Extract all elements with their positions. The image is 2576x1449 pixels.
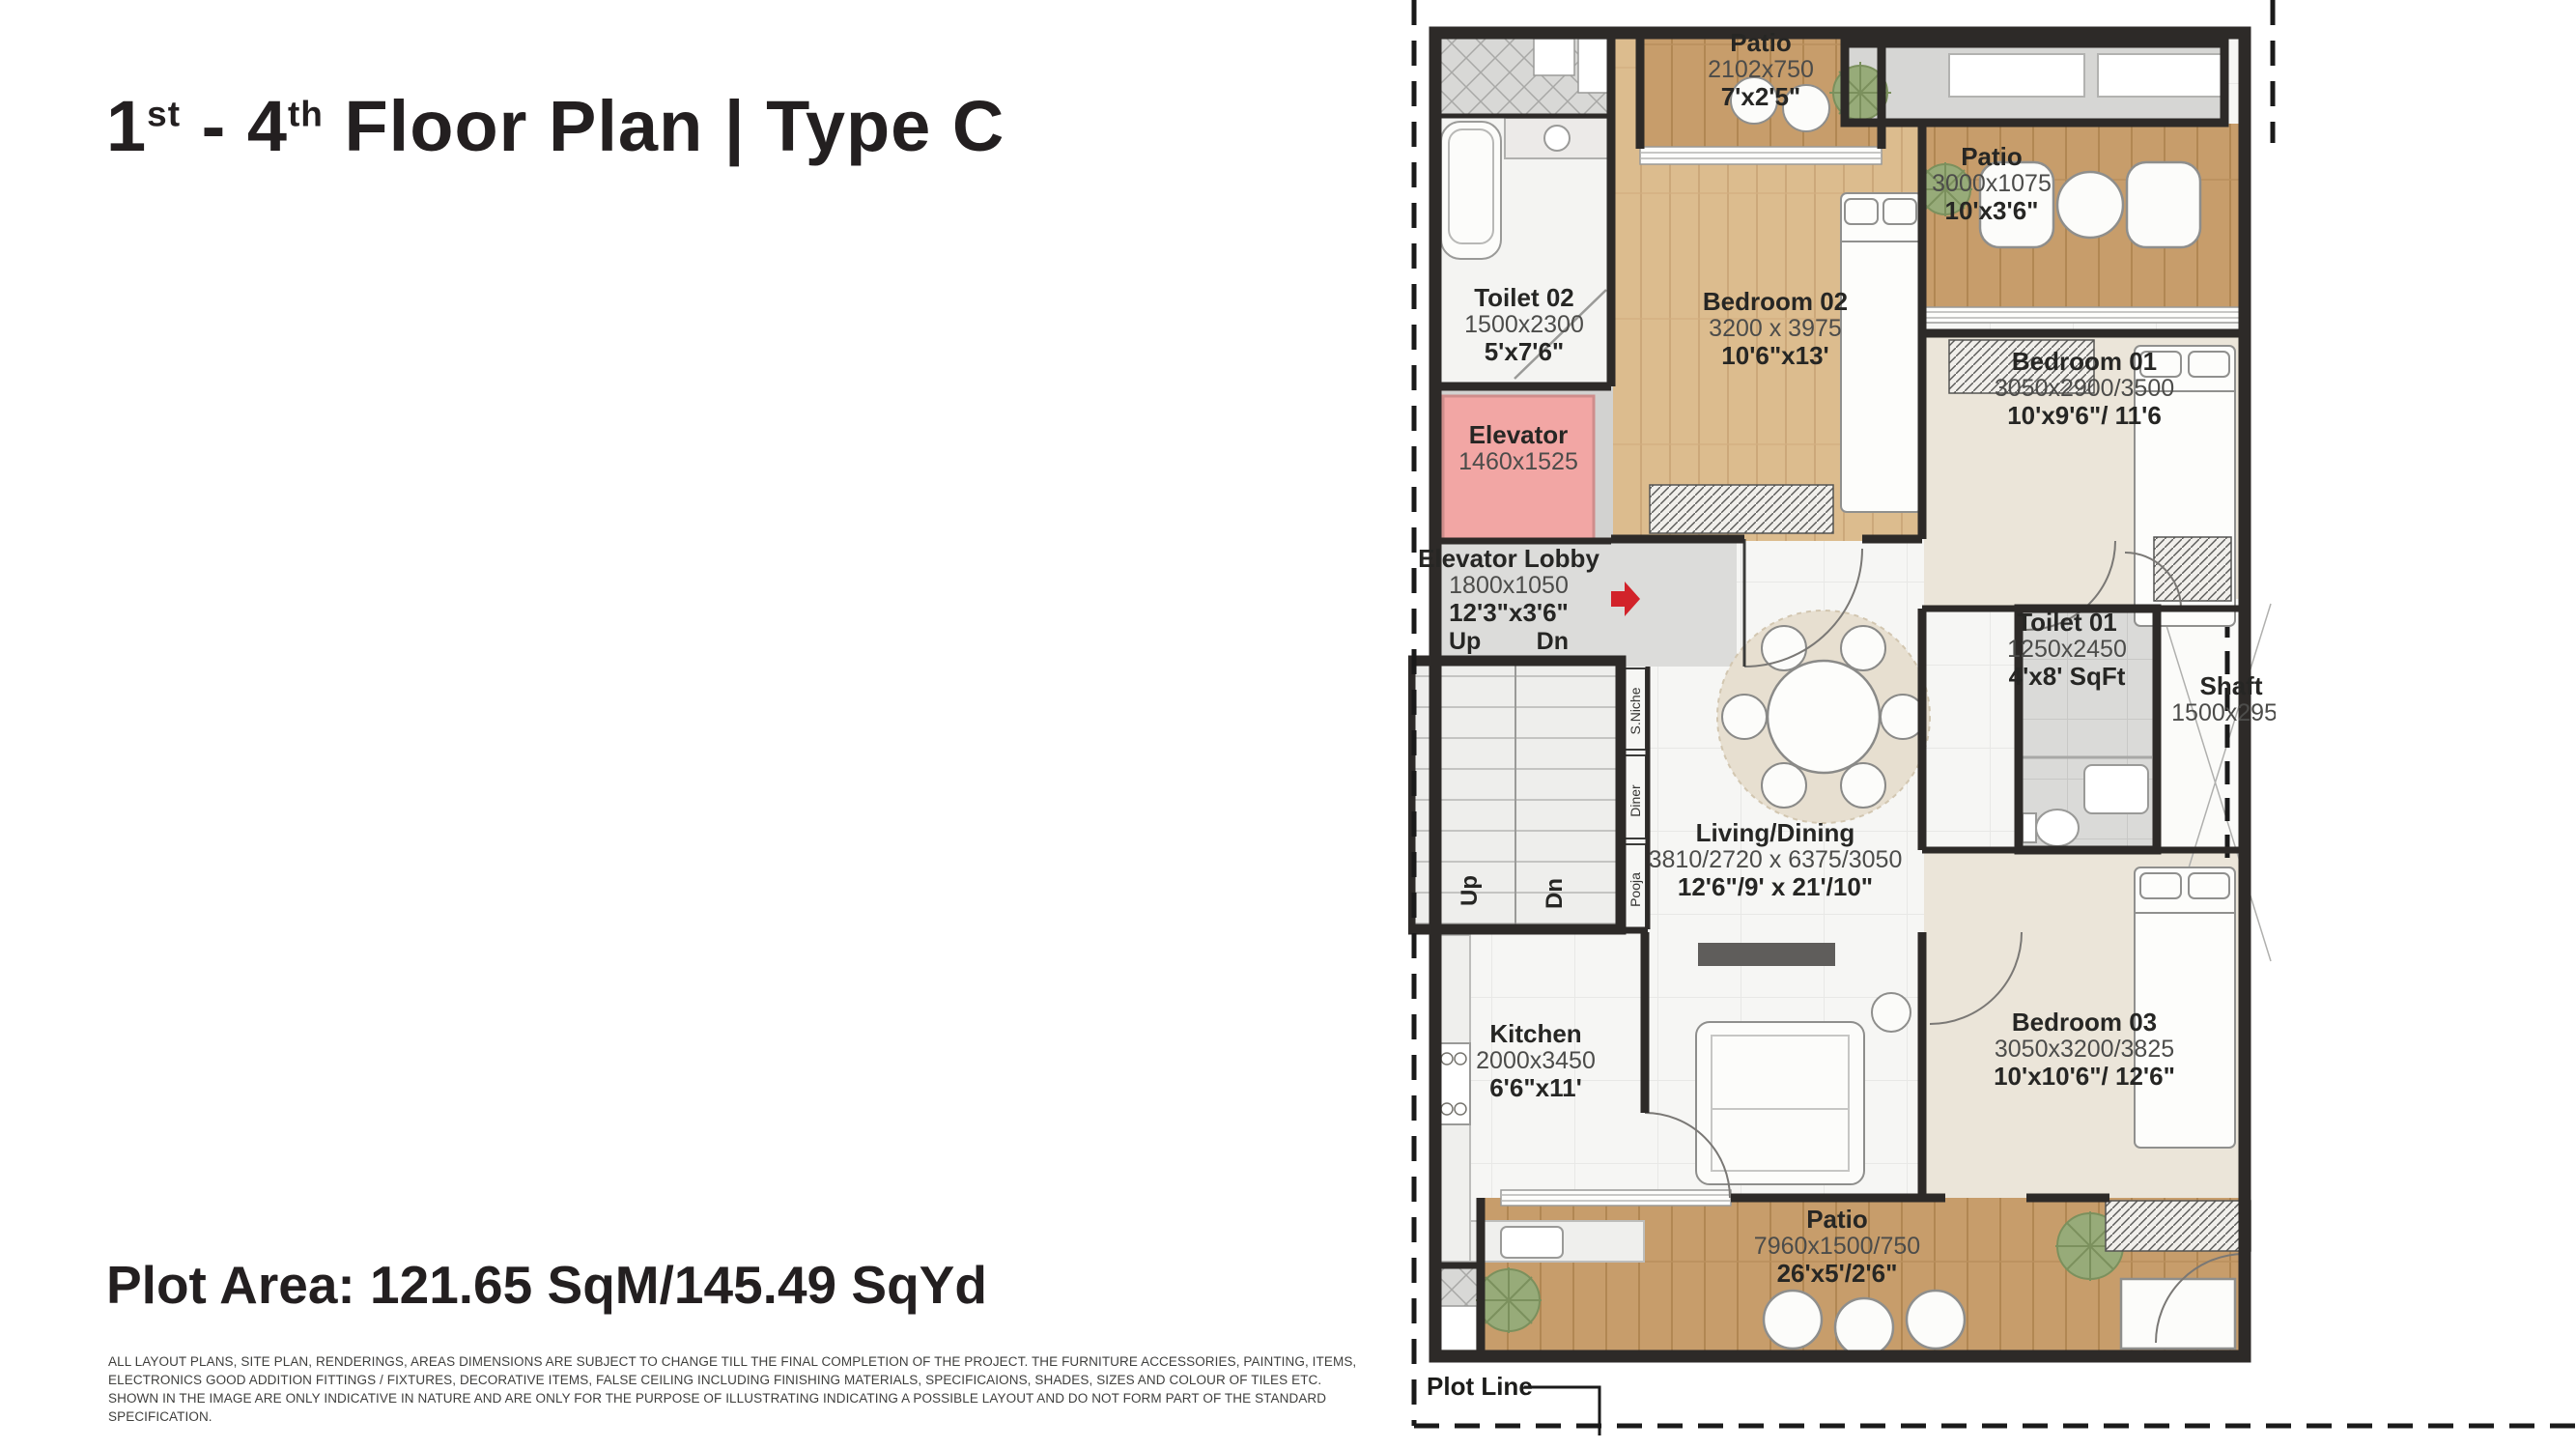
label-kitchen: Kitchen2000x34506'6"x11' — [1476, 1020, 1596, 1101]
kitchen-sink — [1501, 1227, 1563, 1258]
lobby-dn-label: Dn — [1537, 628, 1569, 655]
plot-area-text: Plot Area: 121.65 SqM/145.49 SqYd — [106, 1254, 987, 1316]
niche-label-diner: Diner — [1628, 784, 1643, 816]
label-bedroom-03: Bedroom 033050x3200/382510'x10'6"/ 12'6" — [1994, 1009, 2175, 1090]
sink — [2084, 765, 2148, 813]
disclaimer-line-2: ELECTRONICS GOOD ADDITION FITTINGS / FIX… — [108, 1371, 1364, 1389]
label-bedroom-02: Bedroom 023200 x 397510'6"x13' — [1703, 288, 1848, 369]
label-patio-right: Patio3000x107510'x3'6" — [1932, 143, 2052, 224]
page-title: 1st - 4th Floor Plan | Type C — [106, 85, 1005, 167]
niche-label-pooja: Pooja — [1628, 872, 1643, 907]
label-toilet-02: Toilet 021500x23005'x7'6" — [1464, 284, 1584, 365]
stairs-dn-label: Dn — [1542, 878, 1569, 909]
label-living-dining: Living/Dining3810/2720 x 6375/305012'6"/… — [1649, 819, 1903, 900]
label-bedroom-01: Bedroom 013050x2900/350010'x9'6"/ 11'6 — [1995, 348, 2174, 429]
wc — [2036, 810, 2079, 846]
stairs-up-label: Up — [1457, 875, 1484, 906]
label-patio-bottom: Patio7960x1500/75026'x5'/2'6" — [1754, 1206, 1920, 1287]
label-elevator-lobby: Elevator Lobby1800x105012'3"x3'6" UpDn — [1418, 545, 1599, 655]
bathtub — [1441, 122, 1501, 259]
bed-bedroom-02 — [1841, 193, 1922, 512]
label-shaft: Shaft1500x2955 — [2171, 672, 2276, 726]
floor-plan: Patio2102x7507'x2'5" Toilet 021500x23005… — [1408, 0, 2276, 1432]
patio-table — [2121, 1279, 2235, 1349]
label-elevator: Elevator1460x1525 — [1458, 421, 1578, 475]
disclaimer-line-1: ALL LAYOUT PLANS, SITE PLAN, RENDERINGS,… — [108, 1352, 1364, 1371]
plot-line-label: Plot Line — [1427, 1372, 1533, 1402]
label-toilet-01: Toilet 011250x24504'x8' SqFt — [2007, 609, 2127, 690]
disclaimer-line-3: SHOWN IN THE IMAGE ARE ONLY INDICATIVE I… — [108, 1389, 1364, 1426]
label-patio-top: Patio2102x7507'x2'5" — [1708, 29, 1814, 110]
dining-table — [1768, 661, 1880, 773]
niche-label-sniche: S.Niche — [1628, 687, 1643, 734]
lobby-up-label: Up — [1449, 628, 1481, 655]
floor-plan-page: 1st - 4th Floor Plan | Type C Plot Area:… — [0, 0, 2576, 1449]
sink — [1544, 126, 1570, 151]
disclaimer-text: ALL LAYOUT PLANS, SITE PLAN, RENDERINGS,… — [108, 1352, 1364, 1426]
dining-set — [1717, 611, 1930, 823]
side-table — [1872, 993, 1911, 1032]
tv-console — [1698, 943, 1835, 966]
